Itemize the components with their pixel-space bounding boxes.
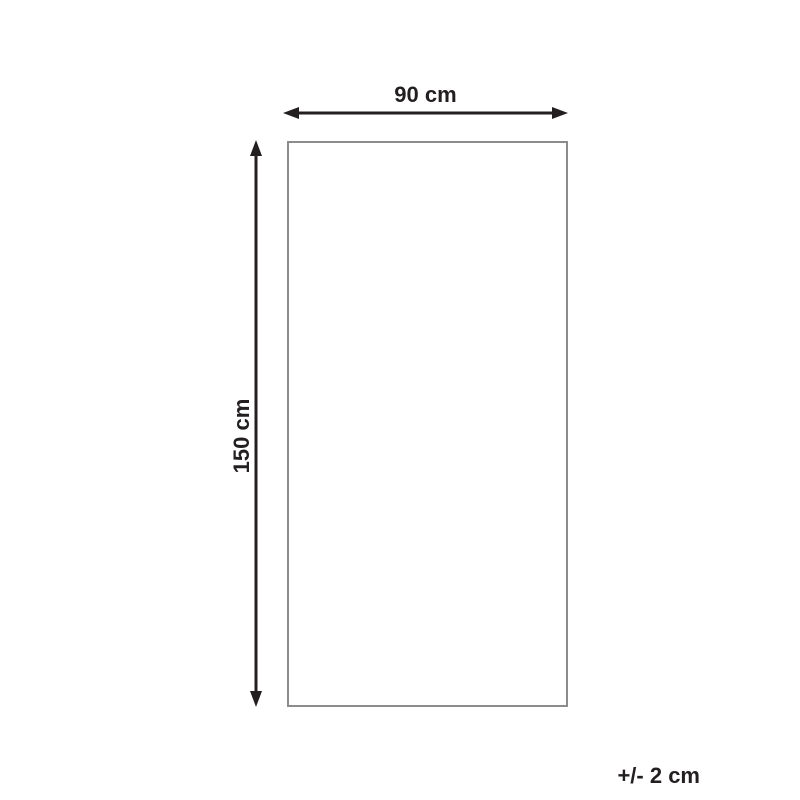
dimension-diagram: 90 cm 150 cm +/- 2 cm (0, 0, 800, 800)
tolerance-label: +/- 2 cm (560, 764, 700, 788)
width-dimension-arrow-icon (283, 106, 568, 120)
height-dimension-label: 150 cm (229, 356, 255, 516)
width-dimension-label: 90 cm (283, 82, 568, 108)
product-outline-rect (287, 141, 568, 707)
